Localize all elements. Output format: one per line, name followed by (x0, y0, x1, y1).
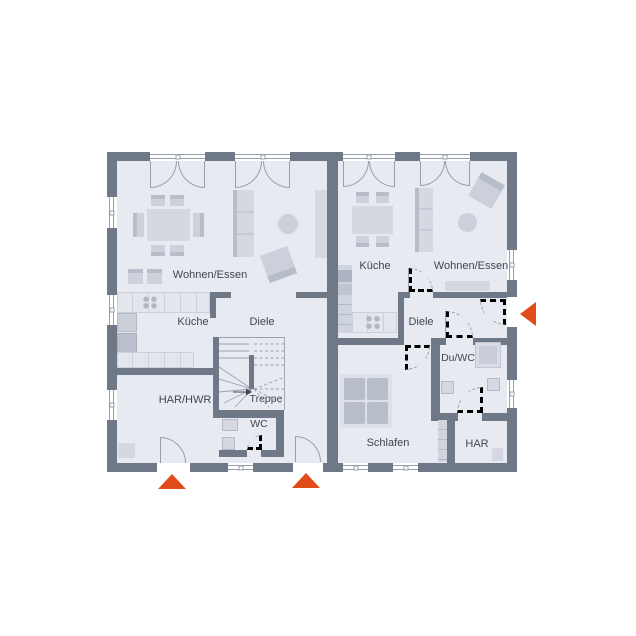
party-wall (327, 152, 338, 472)
room-label-kueche-left: Küche (177, 316, 208, 328)
room-label-diele-right: Diele (408, 316, 433, 328)
room-label-du-wc: Du/WC (441, 352, 475, 364)
window-handle-icon (510, 263, 515, 268)
shelf-unit (415, 188, 433, 252)
room-label-kueche-right: Küche (359, 260, 390, 272)
stool (147, 269, 162, 284)
window (507, 380, 517, 408)
sideboard (445, 281, 490, 291)
wall-wc-top (213, 410, 284, 418)
chair (151, 245, 165, 256)
entrance-arrow-icon (520, 302, 536, 326)
chair (170, 195, 184, 206)
room-label-wohnen-essen-left: Wohnen/Essen (173, 269, 247, 281)
kitchen-cabinets (117, 352, 194, 368)
entrance-arrow-icon (158, 474, 186, 489)
room-label-wc: WC (250, 418, 268, 430)
room-label-treppe: Treppe (250, 393, 283, 405)
entrance-arrow-icon (292, 473, 320, 488)
wall-harhwr-top (117, 368, 219, 375)
room-label-har: HAR (465, 438, 488, 450)
chair (151, 195, 165, 206)
kitchen-appliance (117, 333, 137, 353)
wall-schlafen-top (338, 338, 404, 345)
chair (376, 192, 389, 203)
round-table (458, 213, 477, 232)
patio-door-window (235, 152, 290, 161)
wall-wohnen-diele (296, 292, 327, 298)
entry-door-opening-harhwr (157, 463, 190, 472)
wardrobe (438, 420, 447, 462)
window-handle-icon (510, 392, 515, 397)
window (393, 463, 418, 472)
kitchen-appliance (338, 270, 352, 282)
utility-appliance (492, 448, 503, 461)
wall-wc-bottom-a (219, 450, 247, 457)
shower (475, 342, 501, 368)
chair (376, 236, 389, 247)
chair (193, 213, 204, 237)
patio-door-window (420, 152, 470, 161)
round-table (278, 214, 298, 234)
window-handle-icon (238, 465, 243, 470)
patio-door-window (150, 152, 205, 161)
shelf-unit (233, 190, 254, 257)
dining-table (352, 206, 393, 234)
room-label-har-hwr: HAR/HWR (159, 394, 212, 406)
wall-wohnen-bottom-b (433, 292, 507, 298)
chair (170, 245, 184, 256)
window (107, 390, 117, 420)
window-handle-icon (260, 154, 265, 159)
mattress (344, 402, 365, 424)
window (343, 463, 368, 472)
utility-appliance (118, 443, 135, 458)
wall-duwc-bottom-b (482, 413, 507, 421)
room-label-diele-left: Diele (249, 316, 274, 328)
wall-diele-stub-v (210, 292, 216, 318)
kitchen-appliance (117, 313, 137, 332)
wall-har-left (447, 421, 455, 463)
chair (356, 236, 369, 247)
kitchen-counter (117, 292, 210, 313)
wall-wc-right (276, 410, 284, 457)
room-label-schlafen: Schlafen (367, 437, 410, 449)
window (107, 197, 117, 228)
washbasin (441, 381, 454, 394)
wall-wohnen-bottom-a (404, 292, 410, 298)
window (228, 463, 253, 472)
cooktop-icon (141, 295, 159, 310)
toilet (222, 437, 235, 450)
dining-table (147, 209, 190, 241)
window-handle-icon (110, 210, 115, 215)
chair (356, 192, 369, 203)
wall-wc-bottom-b (261, 450, 277, 457)
patio-door-window (343, 152, 395, 161)
window (507, 250, 517, 280)
mattress (344, 378, 365, 400)
window-handle-icon (110, 308, 115, 313)
wall-duwc-top-a (440, 338, 446, 345)
kitchen-appliance (338, 284, 352, 295)
chair (133, 213, 144, 237)
wall-schlafen-duwc (431, 338, 440, 413)
window (107, 295, 117, 325)
entry-door-opening-left-unit (293, 463, 323, 472)
window-handle-icon (353, 465, 358, 470)
window-handle-icon (443, 154, 448, 159)
entry-door-opening-right-unit (507, 297, 517, 327)
shower-tray (479, 346, 497, 364)
floor-plan-canvas: Wohnen/Essen Küche Diele HAR/HWR Treppe … (0, 0, 636, 636)
window-handle-icon (367, 154, 372, 159)
double-bed (340, 374, 392, 428)
washbasin (222, 419, 238, 431)
mattress (367, 402, 388, 424)
stool (128, 269, 143, 284)
shelf-unit (315, 190, 327, 258)
mattress (367, 378, 388, 400)
room-label-wohnen-essen-right: Wohnen/Essen (434, 260, 508, 272)
window-handle-icon (403, 465, 408, 470)
window-handle-icon (110, 403, 115, 408)
cooktop-icon (364, 314, 382, 331)
window-handle-icon (175, 154, 180, 159)
toilet (487, 378, 500, 391)
